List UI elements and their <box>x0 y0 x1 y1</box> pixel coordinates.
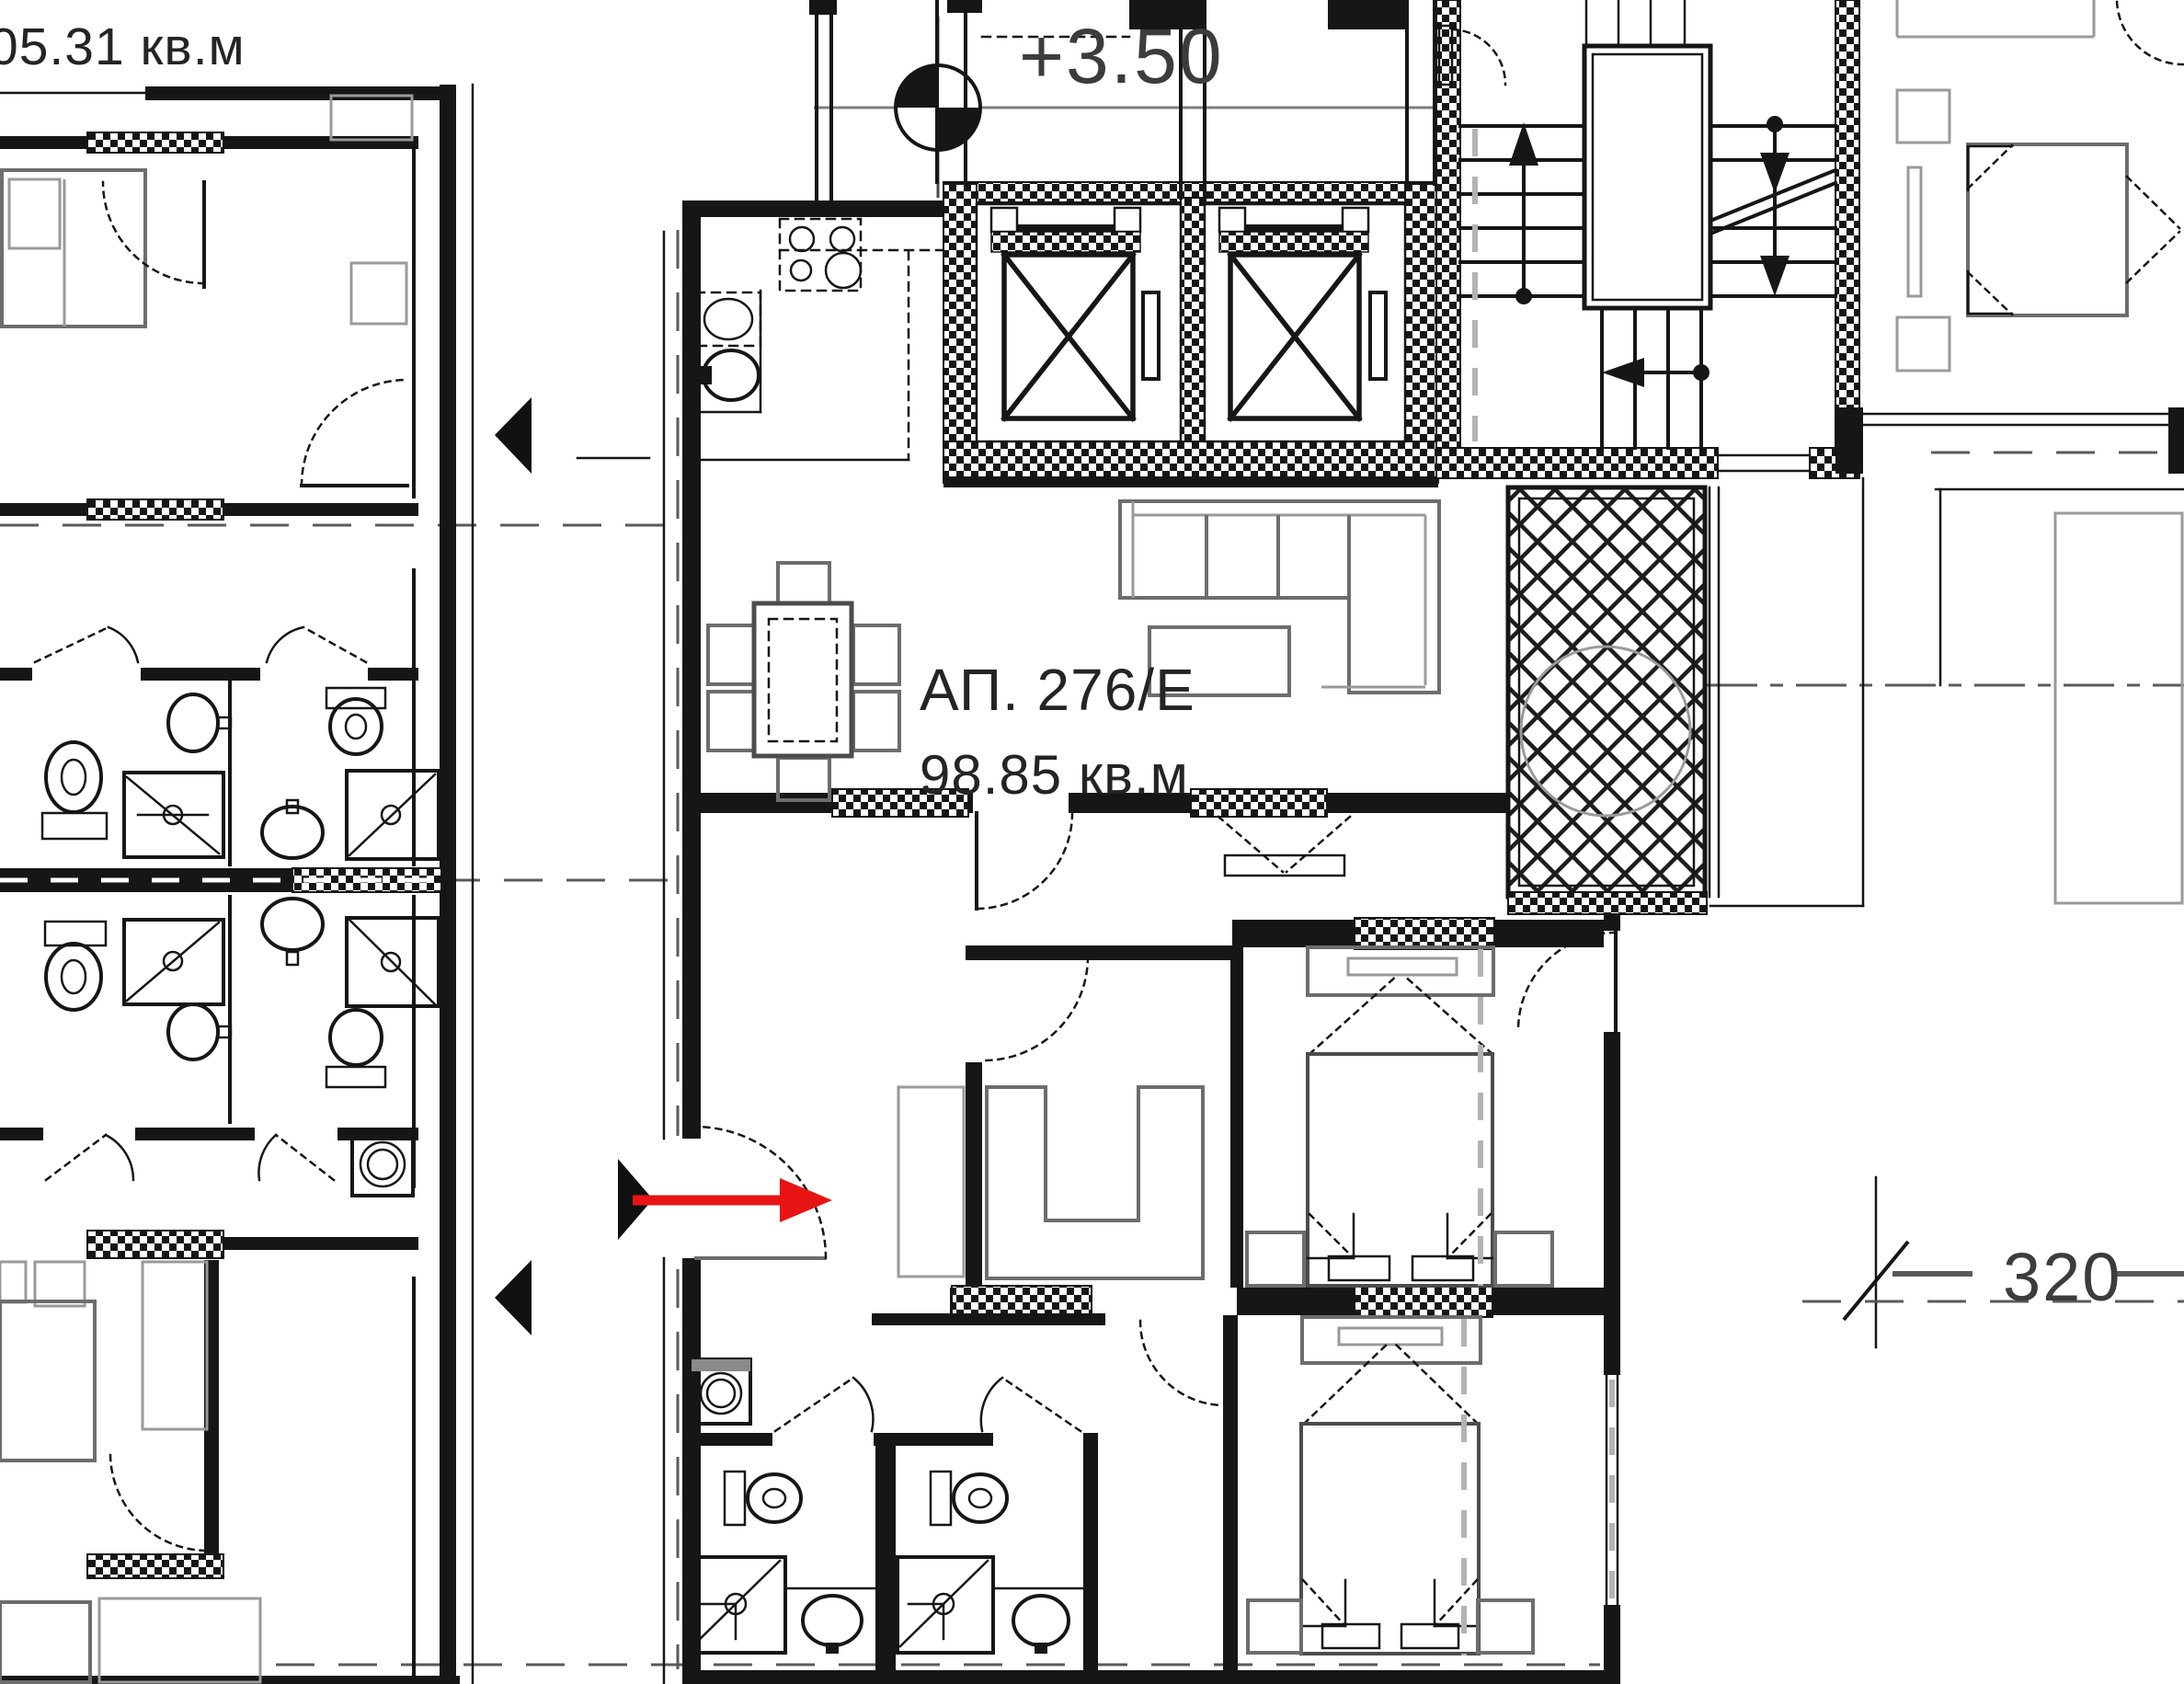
floor-plan-canvas: 05.31 кв.м +3.50 АП. 276/Е 98.85 кв.м 32… <box>0 0 2184 1684</box>
left-apartment-area-label: 05.31 кв.м <box>0 17 246 76</box>
elevation-label: +3.50 <box>1019 13 1224 99</box>
floor-plan-drawing: 05.31 кв.м +3.50 АП. 276/Е 98.85 кв.м 32… <box>0 0 2184 1684</box>
apartment-id-label: АП. 276/Е <box>920 657 1195 723</box>
apartment-area-label: 98.85 кв.м <box>920 744 1189 806</box>
hatched-shaft <box>1508 487 1719 914</box>
dimension-value: 320 <box>2003 1239 2121 1315</box>
